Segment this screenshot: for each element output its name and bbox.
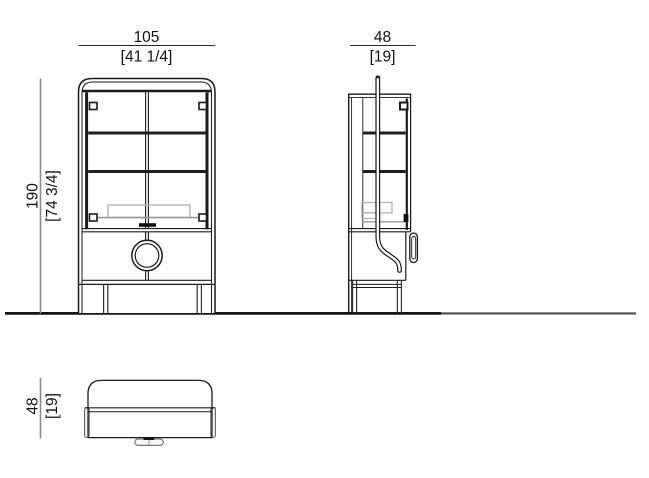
side-curved-tube-inner [378, 79, 400, 270]
top-depth-imperial-label: [19] [44, 393, 61, 419]
top-depth-metric-label: 48 [25, 397, 42, 414]
door-bottom-latch [139, 223, 156, 227]
side-depth-imperial-label: [19] [370, 49, 396, 66]
side-depth-metric-label: 48 [374, 29, 391, 46]
technical-drawing-sheet: 105 [41 1/4] 48 [19] 190 [74 3/4] 48 [19… [0, 0, 649, 478]
top-view [85, 380, 216, 445]
height-metric-label: 190 [25, 183, 42, 209]
hinge-icon [400, 103, 408, 110]
hinge-icon [90, 214, 98, 221]
hinge-icon [90, 103, 98, 110]
side-curved-tube [378, 78, 400, 271]
front-width-dimension: 105 [41 1/4] [79, 29, 216, 66]
top-handle-tab [144, 437, 155, 440]
round-handle-icon [132, 240, 162, 270]
drawing-svg: 105 [41 1/4] 48 [19] 190 [74 3/4] 48 [19… [0, 0, 649, 478]
front-outer-shell [79, 79, 216, 314]
front-view [79, 79, 216, 314]
top-back-outline [88, 380, 212, 407]
height-imperial-label: [74 3/4] [44, 170, 61, 222]
top-depth-dimension: 48 [19] [25, 378, 62, 439]
side-view [348, 78, 417, 313]
front-width-imperial-label: [41 1/4] [121, 49, 173, 66]
height-dimension: 190 [74 3/4] [25, 79, 62, 314]
hinge-icon [404, 214, 409, 222]
front-width-metric-label: 105 [134, 29, 160, 46]
side-depth-dimension: 48 [19] [350, 29, 416, 66]
side-handle-capsule [410, 233, 418, 263]
hinge-icon [199, 103, 207, 110]
hinge-icon [199, 214, 207, 221]
